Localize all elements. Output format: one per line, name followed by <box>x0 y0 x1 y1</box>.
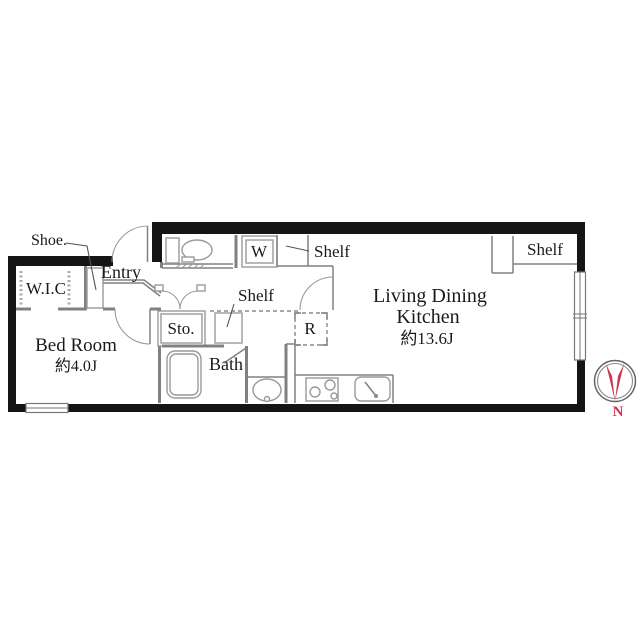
ldk-label-line2: Kitchen <box>396 306 459 328</box>
floorplan-page: Shoe. W.I.C Entry Bed Room 約4.0J Sto. Ba… <box>0 0 640 640</box>
ldk-label-line1: Living Dining <box>373 285 487 307</box>
bedroom-label: Bed Room <box>35 335 117 356</box>
genkan-step <box>103 280 161 296</box>
fridge-label: R <box>304 319 316 338</box>
alcove-niche <box>492 236 513 273</box>
shelf-hall-box <box>215 313 242 343</box>
ldk-size-label: 約13.6J <box>400 329 454 348</box>
exterior-walls <box>8 222 585 412</box>
shelf-hall-label: Shelf <box>238 286 274 305</box>
bathtub-icon <box>167 351 201 398</box>
kitchen-counter <box>295 345 393 403</box>
stove-icon <box>306 378 338 401</box>
shoe-label: Shoe. <box>31 232 67 249</box>
floorplan-drawing: Shoe. W.I.C Entry Bed Room 約4.0J Sto. Ba… <box>0 0 640 640</box>
storage-label: Sto. <box>168 319 195 338</box>
toilet-icon <box>166 238 212 263</box>
washbasin-area <box>248 344 295 403</box>
window-bottom <box>26 404 68 413</box>
storage-doors <box>155 285 205 309</box>
compass: N <box>595 361 636 421</box>
entry-label: Entry <box>101 262 141 282</box>
washer-label: W <box>251 242 268 261</box>
toilet-room <box>162 235 236 268</box>
compass-needle-icon <box>606 364 624 401</box>
shelf-top-label: Shelf <box>314 242 350 261</box>
compass-north-label: N <box>613 404 624 420</box>
kitchen-sink-icon <box>355 377 390 401</box>
wic-label: W.I.C <box>26 279 66 298</box>
washbasin-icon <box>253 379 281 402</box>
entry-door <box>112 226 148 262</box>
window-right <box>573 272 587 360</box>
bedroom-size-label: 約4.0J <box>55 357 97 375</box>
bath-label: Bath <box>209 354 243 374</box>
bedroom-door <box>115 309 150 344</box>
shelf-right-label: Shelf <box>527 240 563 259</box>
